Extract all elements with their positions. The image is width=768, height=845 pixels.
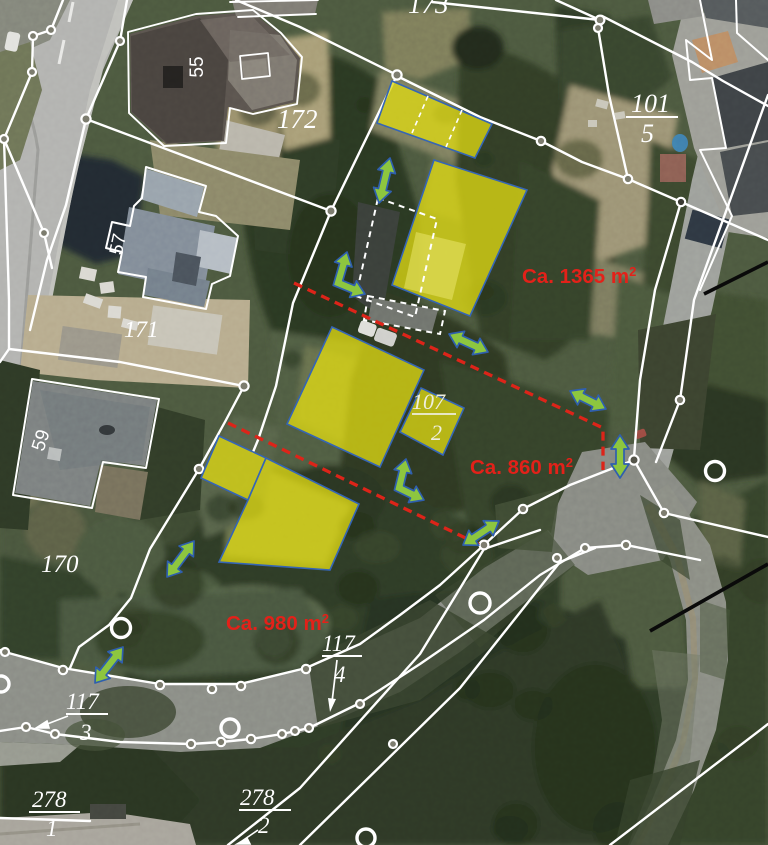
svg-text:278: 278 (32, 787, 67, 812)
svg-text:173: 173 (408, 0, 449, 19)
svg-text:2: 2 (431, 420, 442, 445)
svg-text:107: 107 (412, 389, 446, 414)
svg-text:1: 1 (46, 816, 58, 841)
svg-text:117: 117 (322, 631, 356, 656)
svg-text:3: 3 (79, 720, 92, 745)
svg-text:Ca. 980 m2: Ca. 980 m2 (226, 611, 329, 636)
svg-text:171: 171 (124, 317, 159, 342)
svg-text:170: 170 (41, 551, 79, 578)
svg-text:5: 5 (641, 119, 654, 148)
svg-text:117: 117 (66, 689, 100, 714)
svg-text:Ca. 1365 m2: Ca. 1365 m2 (522, 264, 636, 289)
svg-text:2: 2 (258, 813, 270, 838)
svg-text:101: 101 (631, 89, 670, 118)
svg-text:172: 172 (277, 104, 318, 134)
svg-text:278: 278 (240, 785, 275, 810)
svg-text:57: 57 (106, 232, 131, 257)
svg-text:55: 55 (187, 56, 208, 77)
svg-text:Ca. 860 m2: Ca. 860 m2 (470, 455, 573, 480)
